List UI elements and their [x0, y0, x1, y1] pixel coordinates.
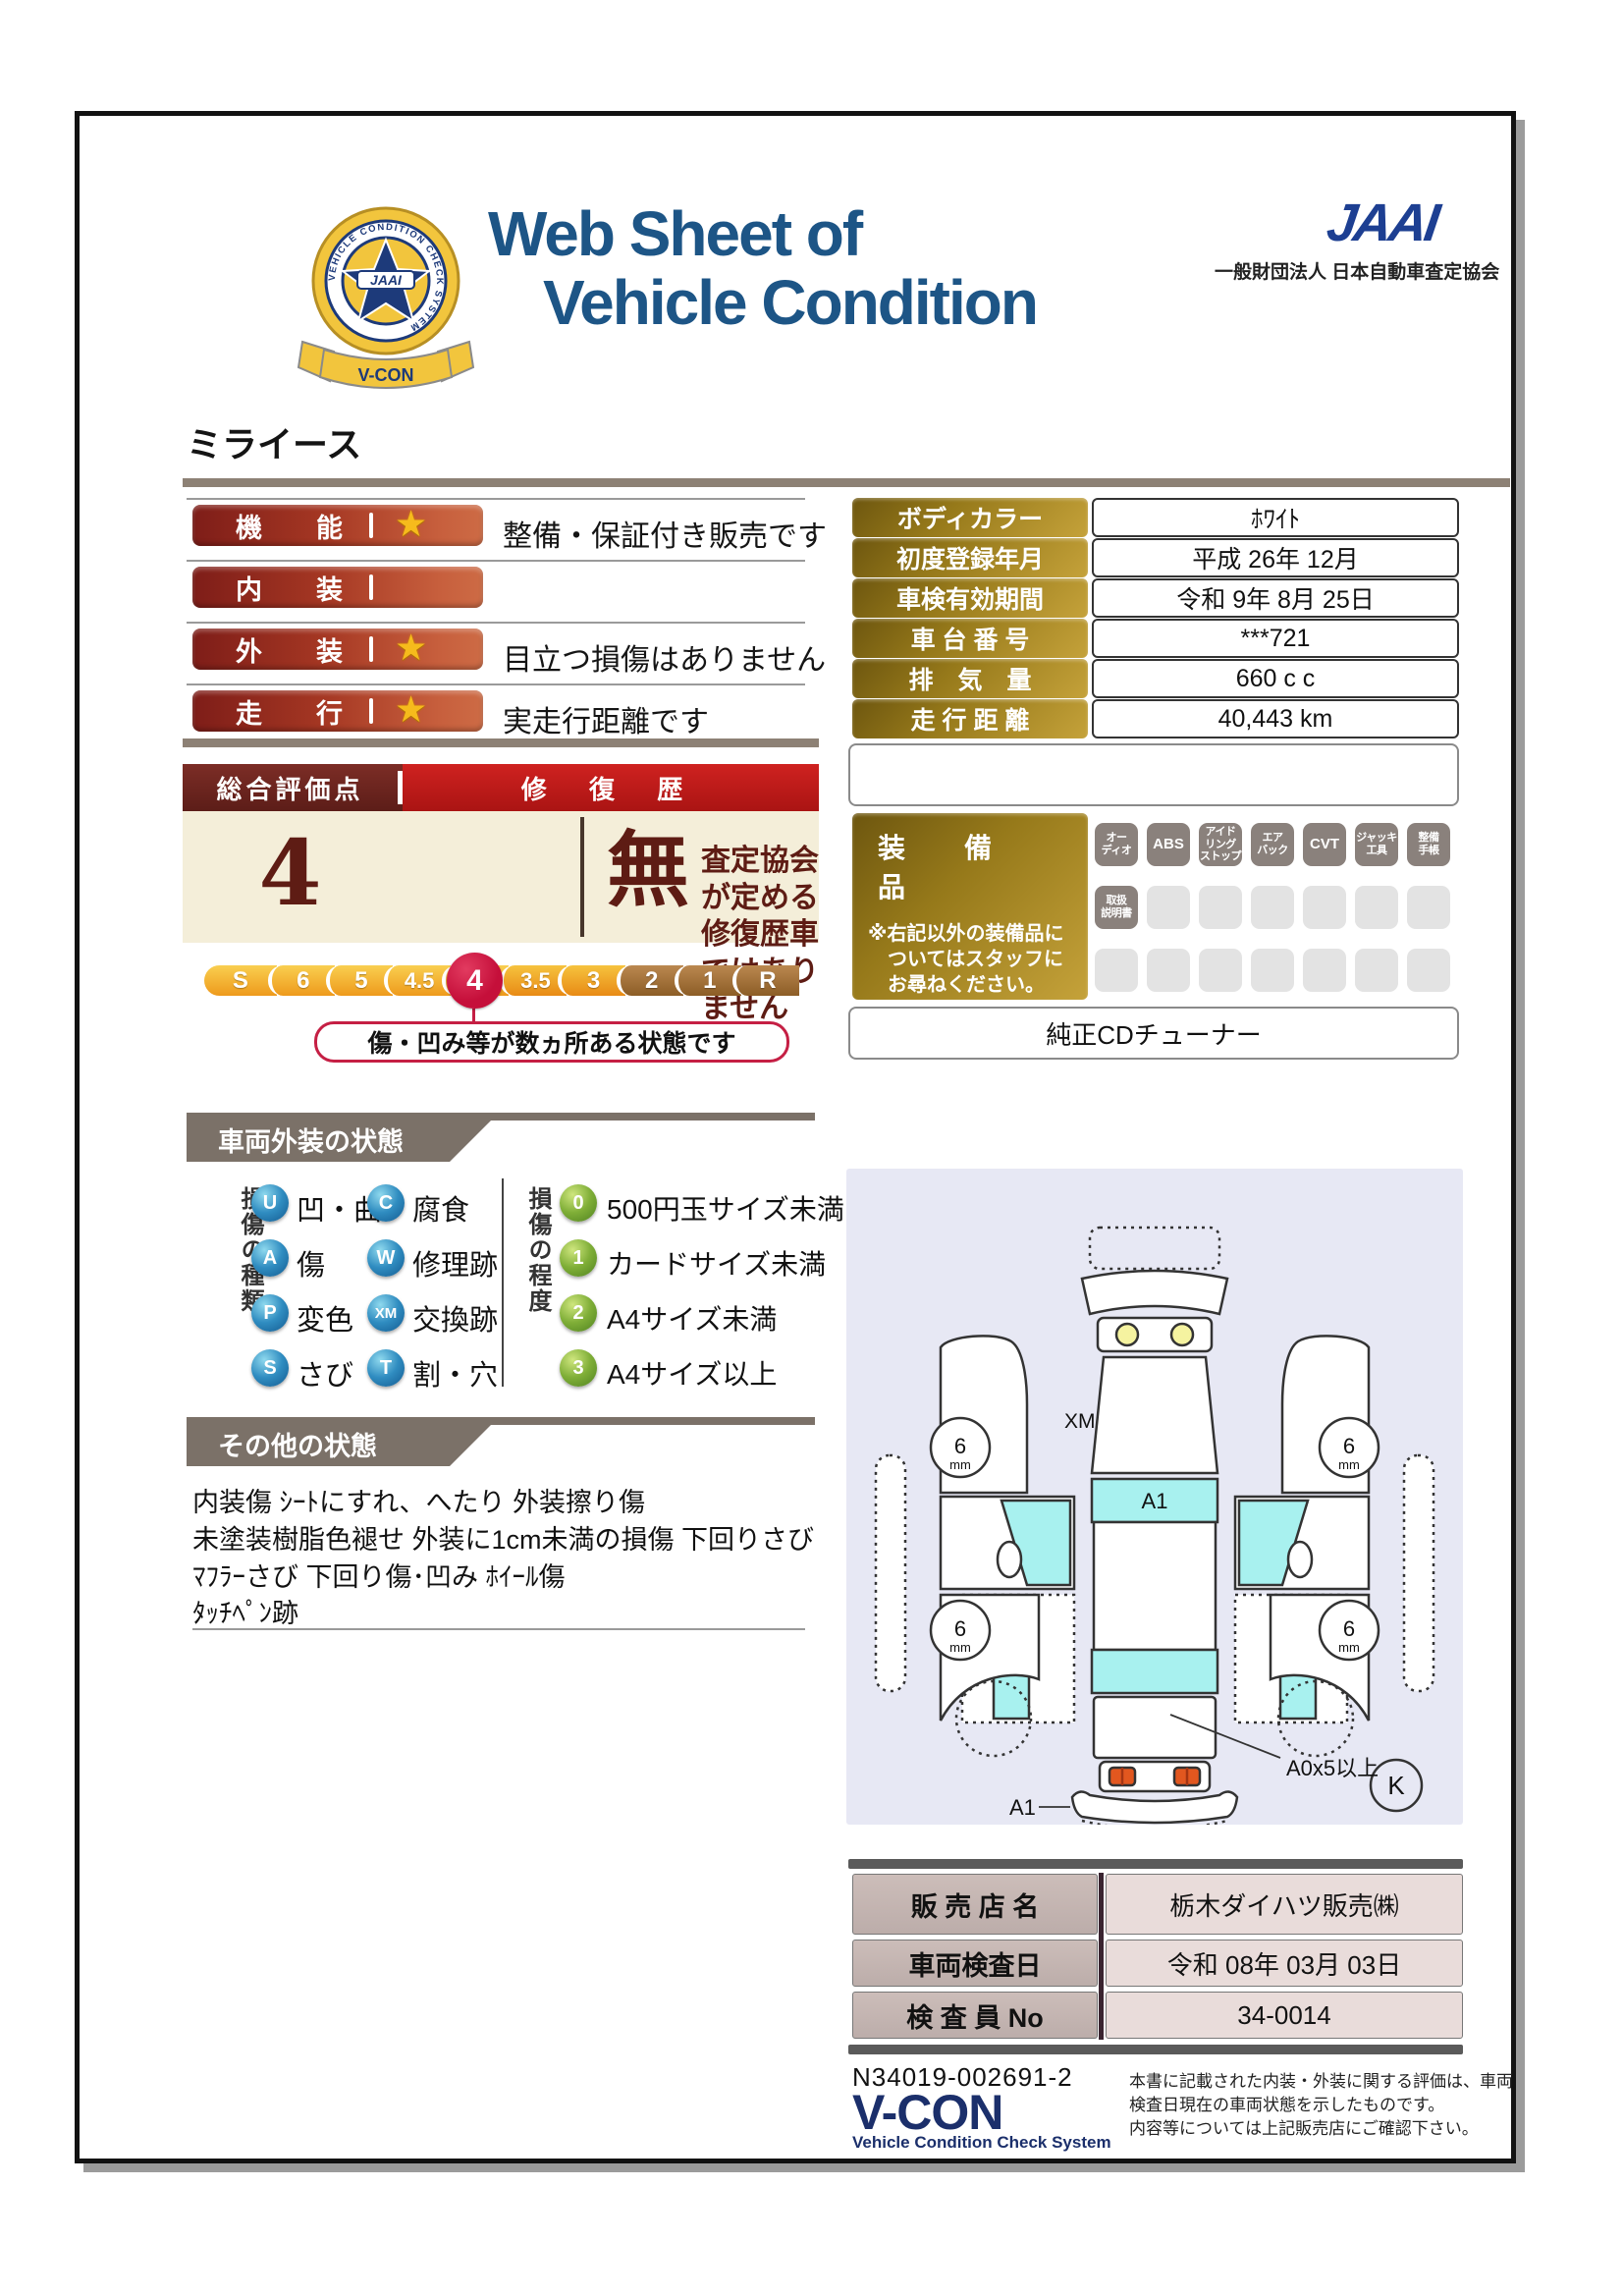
other-condition-line3: ﾏﾌﾗｰさび 下回り傷･凹み ﾎｲｰﾙ傷: [192, 1559, 814, 1597]
equipment-badge-empty: [1355, 886, 1398, 929]
damage-degree-3-icon: 3: [560, 1349, 597, 1387]
car-diagram-svg: 6 mm 6 mm 6 mm 6 mm XM A1 A0x5以上 A1 K: [846, 1169, 1463, 1825]
overall-score-header: 総合評価点 修 復 歴: [183, 764, 819, 811]
equipment-badge-empty: [1251, 886, 1294, 929]
dealer-table-divider: [1099, 1873, 1104, 2040]
equipment-note-line3: お尋ねください。: [868, 972, 1088, 998]
equipment-badge-idling-stop: アイド リング ストップ: [1199, 823, 1242, 866]
svg-text:6: 6: [1343, 1616, 1355, 1641]
damage-type-u-icon: U: [251, 1184, 289, 1222]
rating-note: 実走行距離です: [503, 697, 709, 740]
other-condition-line1: 内装傷 ｼｰﾄにすれ、へたり 外装擦り傷: [192, 1485, 814, 1522]
six-mm-marker: 6: [954, 1434, 966, 1458]
inspector-no-label: 検 査 員 No: [852, 1992, 1098, 2039]
disclaimer-text: 本書に記載された内装・外装に関する評価は、車両 検査日現在の車両状態を示したもの…: [1129, 2070, 1513, 2140]
grade-callout: 傷・凹み等が数ヵ所ある状態です: [314, 1021, 789, 1063]
overall-score-body: 4 無 査定協会が定める 修復歴車ではありません: [183, 811, 819, 943]
equipment-note-line2: ついてはスタッフに: [868, 947, 1088, 972]
damage-type-xm-label: 交換跡: [412, 1297, 498, 1339]
rating-row-function: 機 能 ★: [192, 505, 483, 546]
grade-segment: 2: [617, 965, 683, 996]
equipment-badge-empty: [1303, 949, 1346, 992]
equipment-badge-empty: [1199, 886, 1242, 929]
damage-type-w-label: 修理跡: [412, 1242, 498, 1284]
rating-label: 外 装: [192, 630, 356, 669]
equipment-panel: 装 備 品 ※右記以外の装備品に ついてはスタッフに お尋ねください。: [852, 813, 1088, 1000]
damage-type-s-icon: S: [251, 1349, 289, 1387]
damage-degree-0-icon: 0: [560, 1184, 597, 1222]
equipment-badge-abs: ABS: [1147, 823, 1190, 866]
selected-grade-marker: 4: [447, 953, 503, 1009]
info-label-chassis-number: 車 台 番 号: [852, 619, 1088, 658]
rating-separator: [187, 498, 805, 500]
info-label-mileage: 走 行 距 離: [852, 699, 1088, 738]
svg-text:mm: mm: [949, 1457, 971, 1472]
rating-row-interior: 内 装: [192, 567, 483, 608]
vehicle-condition-sheet: VEHICLE CONDITION CHECK SYSTEM JAAI V-CO…: [0, 0, 1623, 2296]
grade-segment: S: [204, 965, 277, 996]
equipment-badge-empty: [1407, 949, 1450, 992]
divider-bar-left: [183, 738, 819, 747]
dealer-name-value: 栃木ダイハツ販売㈱: [1106, 1874, 1463, 1935]
rating-row-exterior: 外 装 ★: [192, 629, 483, 670]
grade-segment: 6: [268, 965, 335, 996]
svg-text:6: 6: [954, 1616, 966, 1641]
rating-pipe: [369, 636, 373, 662]
damage-type-w-icon: W: [367, 1239, 405, 1277]
rating-separator: [187, 560, 805, 562]
grade-segment: 5: [326, 965, 393, 996]
rating-note: 目立つ損傷はありません: [503, 635, 826, 679]
rating-note: 整備・保証付き販売です: [503, 512, 827, 555]
rating-label: 内 装: [192, 569, 356, 607]
equipment-badge-audio: オー ディオ: [1095, 823, 1138, 866]
repair-history-flag: 無: [607, 821, 689, 920]
equipment-badge-empty: [1407, 886, 1450, 929]
overall-score-value: 4: [183, 819, 398, 927]
jaai-logo: JAAI: [1324, 192, 1441, 253]
dealer-table-bottom-bar: [848, 2045, 1463, 2054]
equipment-extra-box: 純正CDチューナー: [848, 1007, 1459, 1060]
damage-type-s-label: さび: [297, 1352, 353, 1394]
damage-degree-3-label: A4サイズ以上: [607, 1353, 777, 1393]
disclaimer-line2: 検査日現在の車両状態を示したものです。: [1129, 2094, 1513, 2117]
vcon-subtitle: Vehicle Condition Check System: [852, 2133, 1111, 2153]
rating-separator: [187, 683, 805, 685]
grade-segment: 1: [675, 965, 741, 996]
damage-degree-1-label: カードサイズ未満: [607, 1243, 826, 1283]
svg-text:mm: mm: [1338, 1457, 1360, 1472]
grade-segment: R: [732, 965, 799, 996]
damage-mark-xm: XM: [1064, 1410, 1096, 1433]
svg-text:mm: mm: [949, 1640, 971, 1655]
dealer-table-top-bar: [848, 1859, 1463, 1869]
inspection-date-value: 令和 08年 03月 03日: [1106, 1940, 1463, 1987]
vehicle-name: ミライース: [187, 416, 361, 467]
rating-label: 機 能: [192, 507, 356, 545]
info-value-first-registration: 平成 26年 12月: [1092, 538, 1459, 577]
grade-segment: 4.5: [384, 965, 451, 996]
grade-segment: 3: [558, 965, 624, 996]
equipment-badge-empty: [1303, 886, 1346, 929]
repair-history-note: 査定協会が定める 修復歴車ではありません: [701, 843, 819, 1027]
info-value-body-color: ﾎﾜｲﾄ: [1092, 498, 1459, 537]
info-label-inspection-valid: 車検有効期間: [852, 578, 1088, 618]
overall-score-box: 総合評価点 修 復 歴 4 無 査定協会が定める 修復歴車ではありません: [183, 764, 819, 943]
dealer-name-label: 販 売 店 名: [852, 1874, 1098, 1935]
damage-type-a-icon: A: [251, 1239, 289, 1277]
disclaimer-line3: 内容等については上記販売店にご確認下さい。: [1129, 2117, 1513, 2141]
rating-pipe: [369, 574, 373, 600]
equipment-badge-empty: [1147, 886, 1190, 929]
equipment-badge-owners-manual: 取扱 説明書: [1095, 886, 1138, 929]
sheet-title-line2: Vehicle Condition: [543, 271, 1037, 334]
star-icon: ★: [395, 627, 427, 669]
overall-score-title: 総合評価点: [183, 770, 398, 806]
svg-text:JAAI: JAAI: [370, 272, 403, 288]
svg-text:V-CON: V-CON: [357, 365, 413, 385]
star-icon: ★: [395, 503, 427, 545]
other-section-underline: [192, 1628, 805, 1630]
info-label-first-registration: 初度登録年月: [852, 538, 1088, 577]
inspection-grade-k: K: [1387, 1771, 1405, 1800]
inspector-no-value: 34-0014: [1106, 1992, 1463, 2039]
vcon-emblem-logo: VEHICLE CONDITION CHECK SYSTEM JAAI V-CO…: [295, 192, 477, 407]
equipment-badge-empty: [1199, 949, 1242, 992]
damage-type-t-icon: T: [367, 1349, 405, 1387]
equipment-title: 装 備 品: [852, 813, 1088, 905]
info-label-body-color: ボディカラー: [852, 498, 1088, 537]
equipment-badge-airbag: エア バック: [1251, 823, 1294, 866]
repair-note-line1: 査定協会が定める: [701, 843, 819, 916]
rating-row-mileage: 走 行 ★: [192, 690, 483, 732]
damage-degree-1-icon: 1: [560, 1239, 597, 1277]
svg-text:mm: mm: [1338, 1640, 1360, 1655]
info-value-chassis-number: ***721: [1092, 619, 1459, 658]
equipment-badge-empty: [1251, 949, 1294, 992]
damage-type-c-label: 腐食: [412, 1187, 469, 1229]
equipment-extra-note: 純正CDチューナー: [1046, 1015, 1262, 1052]
damage-mark-a1-bumper: A1: [1009, 1795, 1036, 1820]
info-label-displacement: 排 気 量: [852, 659, 1088, 698]
damage-type-xm-icon: XM: [367, 1294, 405, 1332]
jaai-organization-name: 一般財団法人 日本自動車査定協会: [1215, 257, 1499, 284]
damage-degree-label: 損傷の程度: [520, 1186, 555, 1383]
rating-pipe: [369, 513, 373, 538]
disclaimer-line1: 本書に記載された内装・外装に関する評価は、車両: [1129, 2070, 1513, 2094]
rating-separator: [187, 622, 805, 624]
other-condition-line2: 未塗装樹脂色褪せ 外装に1cm未満の損傷 下回りさび: [192, 1522, 814, 1559]
sheet-title-line1: Web Sheet of: [488, 202, 861, 265]
damage-degree-2-label: A4サイズ未満: [607, 1298, 777, 1338]
damage-type-p-icon: P: [251, 1294, 289, 1332]
info-empty-box: [848, 743, 1459, 806]
equipment-badge-jack-tools: ジャッキ 工具: [1355, 823, 1398, 866]
repair-history-title: 修 復 歴: [403, 764, 819, 811]
damage-type-a-label: 傷: [297, 1242, 325, 1284]
car-damage-diagram: 6 mm 6 mm 6 mm 6 mm XM A1 A0x5以上 A1 K: [846, 1169, 1463, 1825]
damage-type-p-label: 変色: [297, 1297, 353, 1339]
svg-text:6: 6: [1343, 1434, 1355, 1458]
body-divider: [580, 817, 584, 937]
inspection-date-label: 車両検査日: [852, 1940, 1098, 1987]
rating-label: 走 行: [192, 692, 356, 731]
star-icon: ★: [395, 688, 427, 731]
info-value-mileage: 40,443 km: [1092, 699, 1459, 738]
equipment-note-line1: ※右記以外の装備品に: [868, 921, 1088, 947]
equipment-badge-service-book: 整備 手帳: [1407, 823, 1450, 866]
equipment-badge-cvt: CVT: [1303, 823, 1346, 866]
damage-mark-a1-roof: A1: [1142, 1489, 1168, 1513]
damage-type-c-icon: C: [367, 1184, 405, 1222]
equipment-badge-empty: [1355, 949, 1398, 992]
legend-divider: [502, 1178, 504, 1387]
rating-pipe: [369, 698, 373, 724]
other-section-title: その他の状態: [218, 1425, 377, 1463]
equipment-badge-empty: [1095, 949, 1138, 992]
damage-degree-0-label: 500円玉サイズ未満: [607, 1188, 844, 1228]
damage-degree-2-icon: 2: [560, 1294, 597, 1332]
equipment-note: ※右記以外の装備品に ついてはスタッフに お尋ねください。: [852, 905, 1088, 998]
grade-segment: 3.5: [500, 965, 567, 996]
divider-bar-top: [183, 478, 1510, 487]
info-value-displacement: 660 c c: [1092, 659, 1459, 698]
damage-type-t-label: 割・穴: [412, 1352, 498, 1394]
info-value-inspection-valid: 令和 9年 8月 25日: [1092, 578, 1459, 618]
damage-mark-a0: A0x5以上: [1286, 1756, 1379, 1780]
grade-pointer-line: [472, 1009, 475, 1024]
vcon-logo: V-CON: [852, 2088, 1002, 2137]
exterior-section-title: 車両外装の状態: [218, 1121, 404, 1159]
equipment-badge-empty: [1147, 949, 1190, 992]
other-condition-text: 内装傷 ｼｰﾄにすれ、へたり 外装擦り傷 未塗装樹脂色褪せ 外装に1cm未満の損…: [192, 1485, 814, 1633]
